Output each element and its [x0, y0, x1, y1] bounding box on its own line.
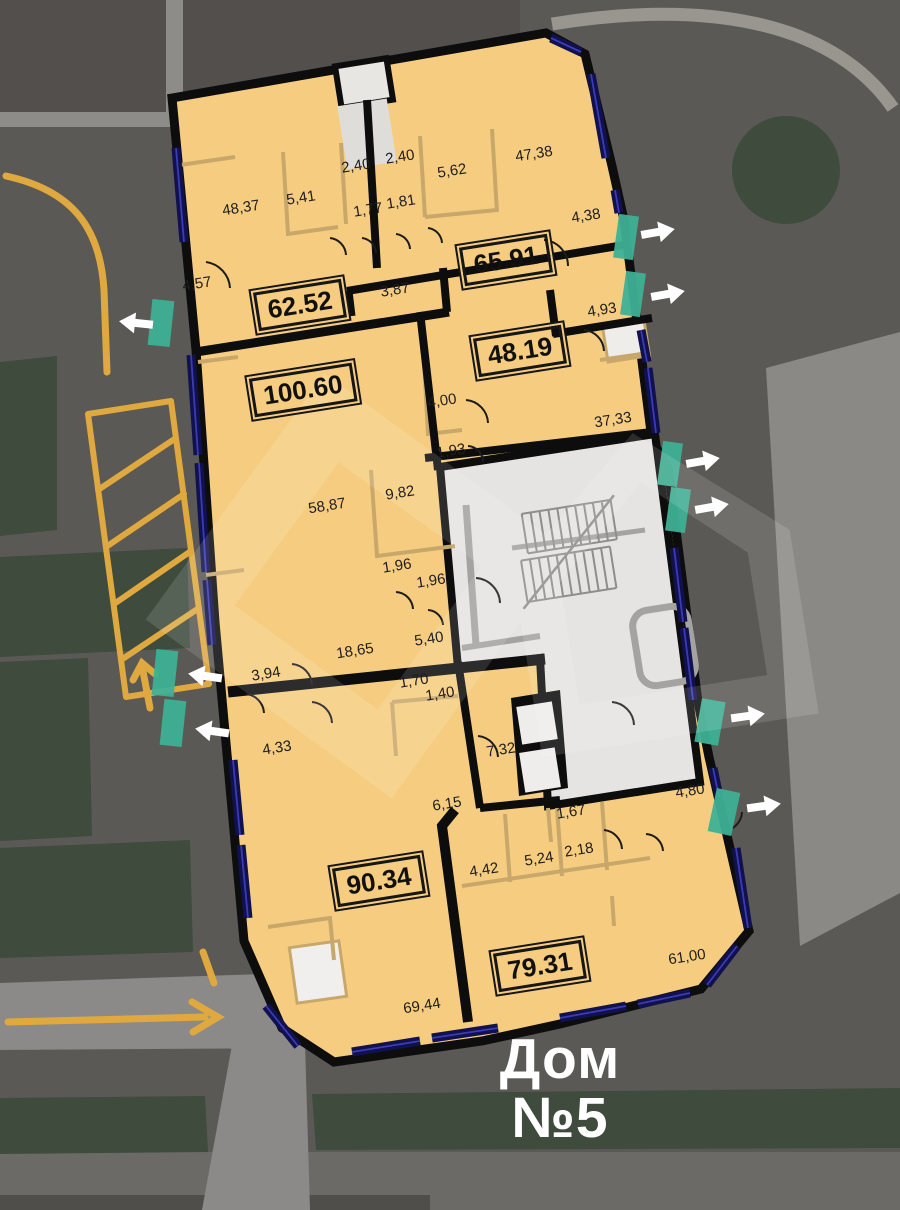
building-title: Дом №5: [450, 1030, 670, 1149]
building-title-line2: №5: [450, 1089, 670, 1148]
site-plan: 48,37 5,41 2,40 1,77 4,57 3,87 2,40 5,62…: [0, 0, 900, 1210]
floorplan-drawing: [0, 0, 900, 1210]
building-title-line1: Дом: [450, 1030, 670, 1089]
tree-circle: [732, 116, 840, 224]
balcony-bottom-left: [289, 941, 346, 1003]
